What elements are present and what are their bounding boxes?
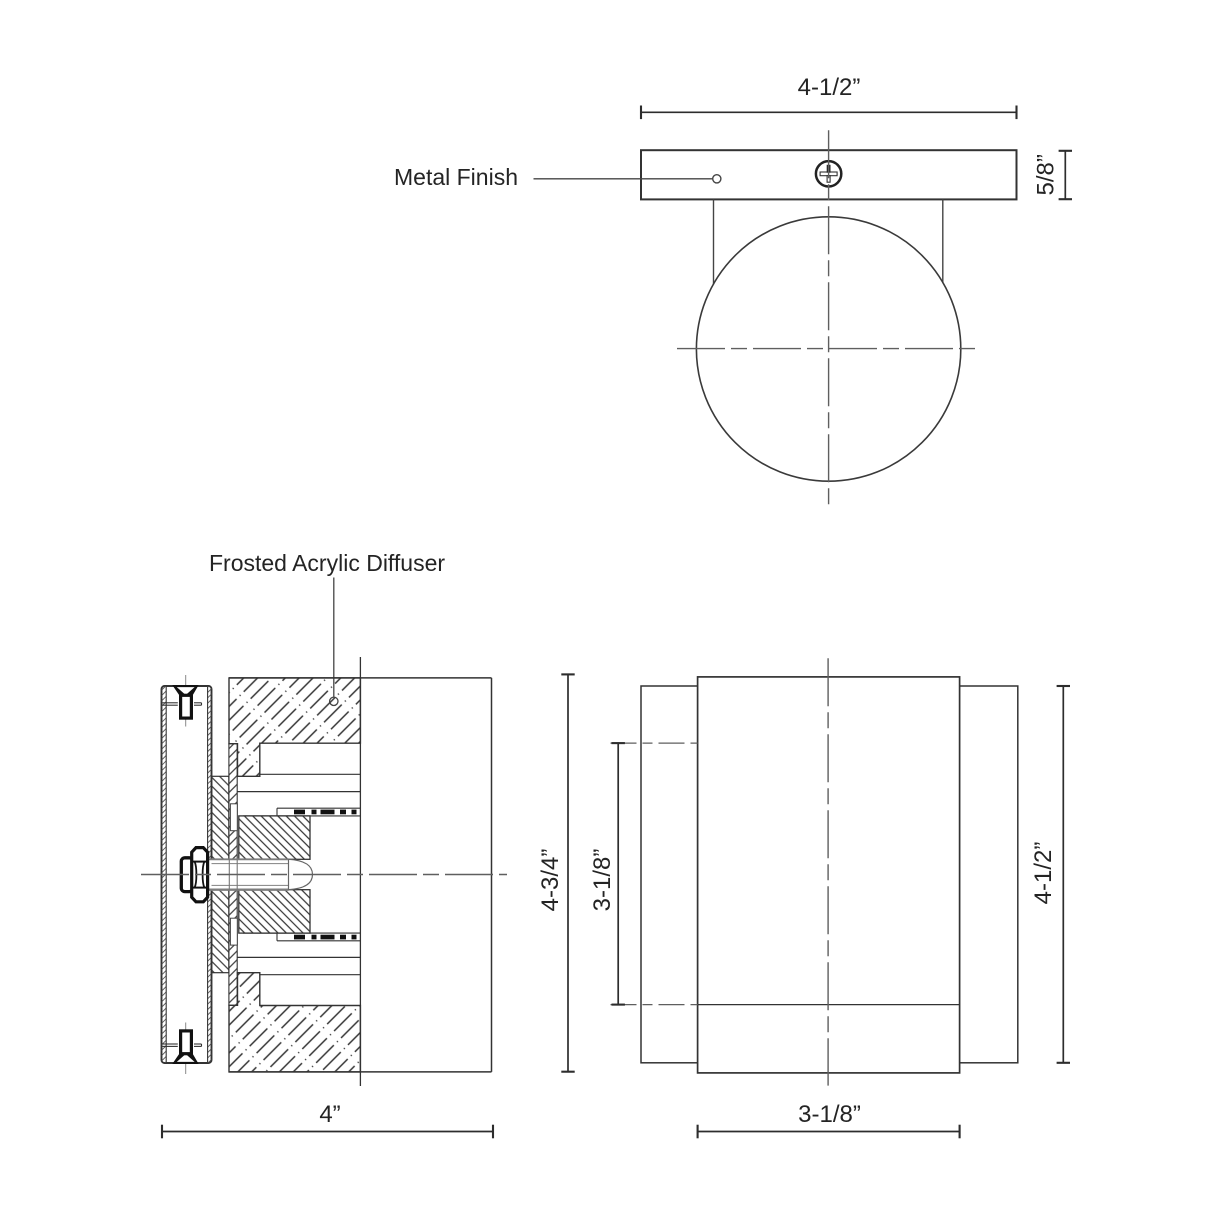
- svg-text:4-3/4”: 4-3/4”: [537, 849, 564, 912]
- svg-text:3-1/8”: 3-1/8”: [589, 849, 616, 912]
- svg-text:3-1/8”: 3-1/8”: [798, 1101, 861, 1128]
- svg-text:4-1/2”: 4-1/2”: [798, 74, 861, 101]
- svg-text:4”: 4”: [319, 1101, 340, 1128]
- svg-text:Frosted Acrylic Diffuser: Frosted Acrylic Diffuser: [209, 550, 445, 576]
- svg-text:4-1/2”: 4-1/2”: [1030, 842, 1057, 905]
- svg-text:Metal Finish: Metal Finish: [394, 164, 518, 190]
- svg-text:5/8”: 5/8”: [1033, 154, 1060, 195]
